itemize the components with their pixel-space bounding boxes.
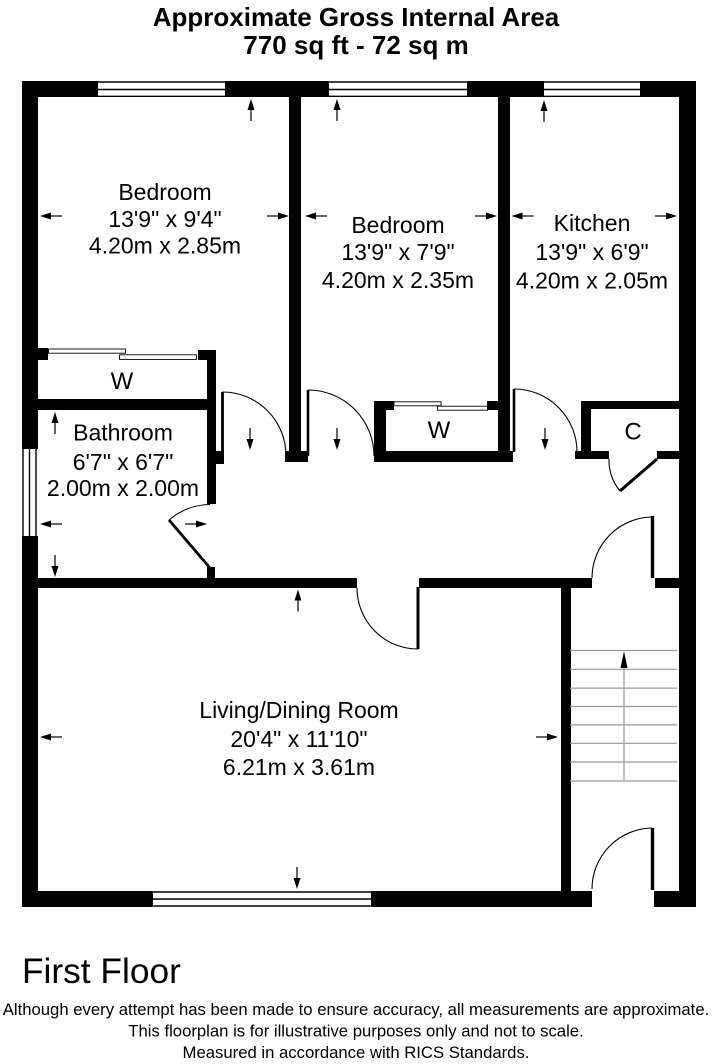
svg-text:2.00m x 2.00m: 2.00m x 2.00m: [47, 475, 199, 501]
svg-text:Measured in accordance with RI: Measured in accordance with RICS Standar…: [183, 1043, 530, 1062]
svg-text:6'7" x 6'7": 6'7" x 6'7": [73, 449, 174, 475]
svg-text:W: W: [428, 417, 451, 444]
svg-text:13'9" x 9'4": 13'9" x 9'4": [108, 206, 221, 232]
svg-text:Bedroom: Bedroom: [118, 179, 211, 205]
svg-text:C: C: [624, 419, 641, 446]
svg-text:Kitchen: Kitchen: [554, 210, 631, 236]
svg-text:Approximate Gross Internal Are: Approximate Gross Internal Area: [153, 2, 560, 32]
svg-text:W: W: [111, 368, 134, 395]
svg-text:4.20m x 2.85m: 4.20m x 2.85m: [89, 233, 241, 259]
svg-text:Bathroom: Bathroom: [73, 420, 173, 446]
svg-text:13'9" x 7'9": 13'9" x 7'9": [341, 239, 454, 265]
svg-text:Although every attempt has bee: Although every attempt has been made to …: [3, 1000, 710, 1019]
svg-text:4.20m x 2.05m: 4.20m x 2.05m: [516, 268, 668, 294]
svg-text:4.20m x 2.35m: 4.20m x 2.35m: [322, 267, 474, 293]
svg-text:This floorplan is for illustra: This floorplan is for illustrative purpo…: [128, 1022, 583, 1041]
svg-text:Bedroom: Bedroom: [351, 212, 444, 238]
svg-text:13'9" x 6'9": 13'9" x 6'9": [535, 239, 648, 265]
svg-text:First Floor: First Floor: [22, 952, 181, 991]
svg-text:770 sq ft - 72 sq m: 770 sq ft - 72 sq m: [243, 30, 468, 60]
svg-text:20'4" x 11'10": 20'4" x 11'10": [230, 726, 367, 752]
svg-text:Living/Dining Room: Living/Dining Room: [199, 697, 398, 723]
svg-text:6.21m x 3.61m: 6.21m x 3.61m: [223, 754, 375, 780]
